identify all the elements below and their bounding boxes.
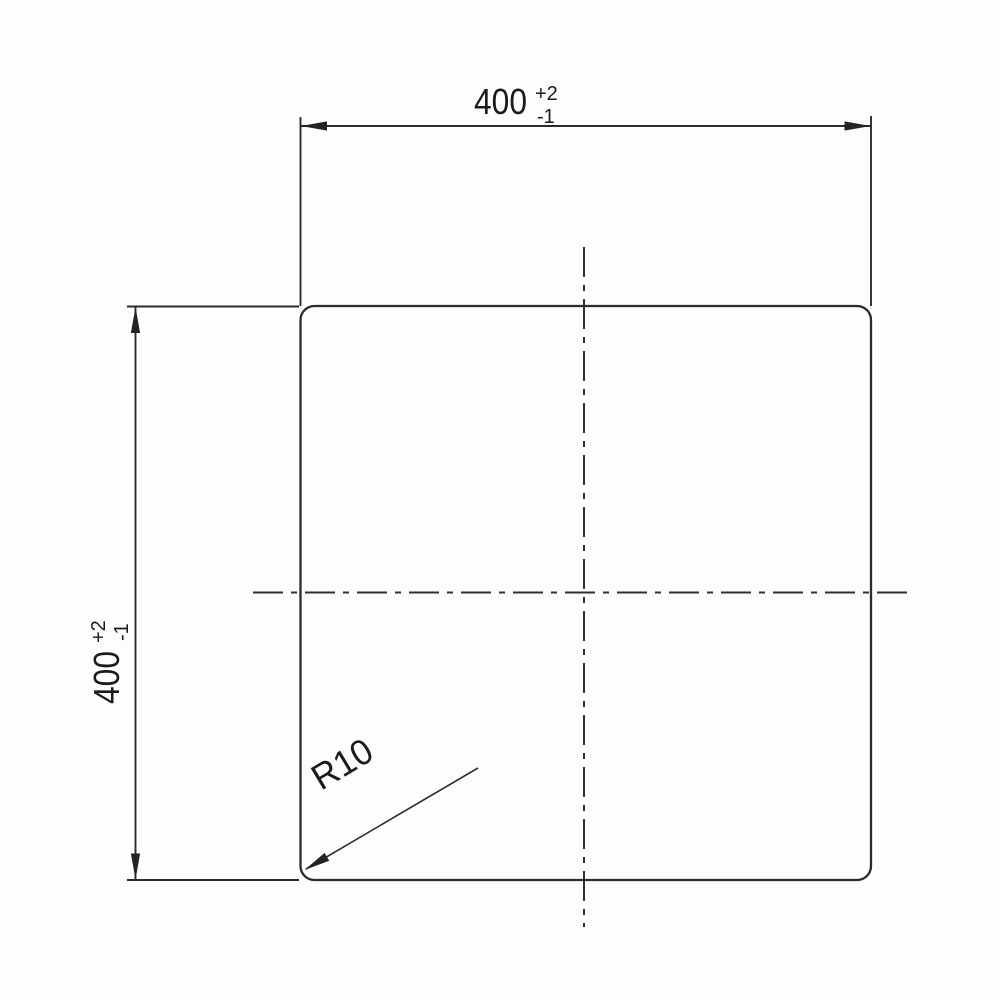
horizontal-dimension-tolerance-plus: +2 bbox=[535, 83, 558, 105]
vertical-dimension-label: 400 +2 -1 bbox=[86, 620, 133, 704]
horizontal-dimension-label: 400 +2 -1 bbox=[474, 81, 558, 128]
radius-callout-text: R10 bbox=[304, 730, 380, 798]
horizontal-dimension-value: 400 bbox=[474, 81, 527, 122]
horizontal-dimension-tolerance-minus: -1 bbox=[537, 106, 555, 128]
vertical-dimension-tolerance-plus: +2 bbox=[88, 620, 110, 643]
arrowhead-down-icon bbox=[131, 854, 140, 880]
drawing-svg: 400 +2 -1 400 +2 -1 R10 bbox=[0, 0, 1000, 1000]
vertical-dimension-value: 400 bbox=[86, 651, 127, 704]
arrowhead-left-icon bbox=[301, 121, 327, 130]
arrowhead-right-icon bbox=[845, 121, 871, 130]
drawing-canvas: 400 +2 -1 400 +2 -1 R10 bbox=[0, 0, 1000, 1000]
radius-callout-label: R10 bbox=[304, 730, 380, 798]
vertical-dimension-tolerance-minus: -1 bbox=[111, 623, 133, 641]
arrowhead-up-icon bbox=[131, 307, 140, 333]
radius-arrowhead-icon bbox=[302, 853, 329, 874]
